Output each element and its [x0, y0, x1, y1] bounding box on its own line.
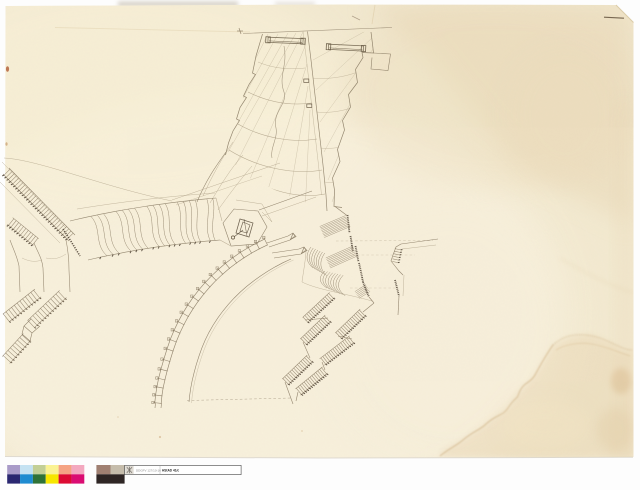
svg-text:HStAD 41/c: HStAD 41/c — [162, 469, 179, 473]
svg-text:DDGFV 127/10-16: DDGFV 127/10-16 — [136, 469, 161, 473]
